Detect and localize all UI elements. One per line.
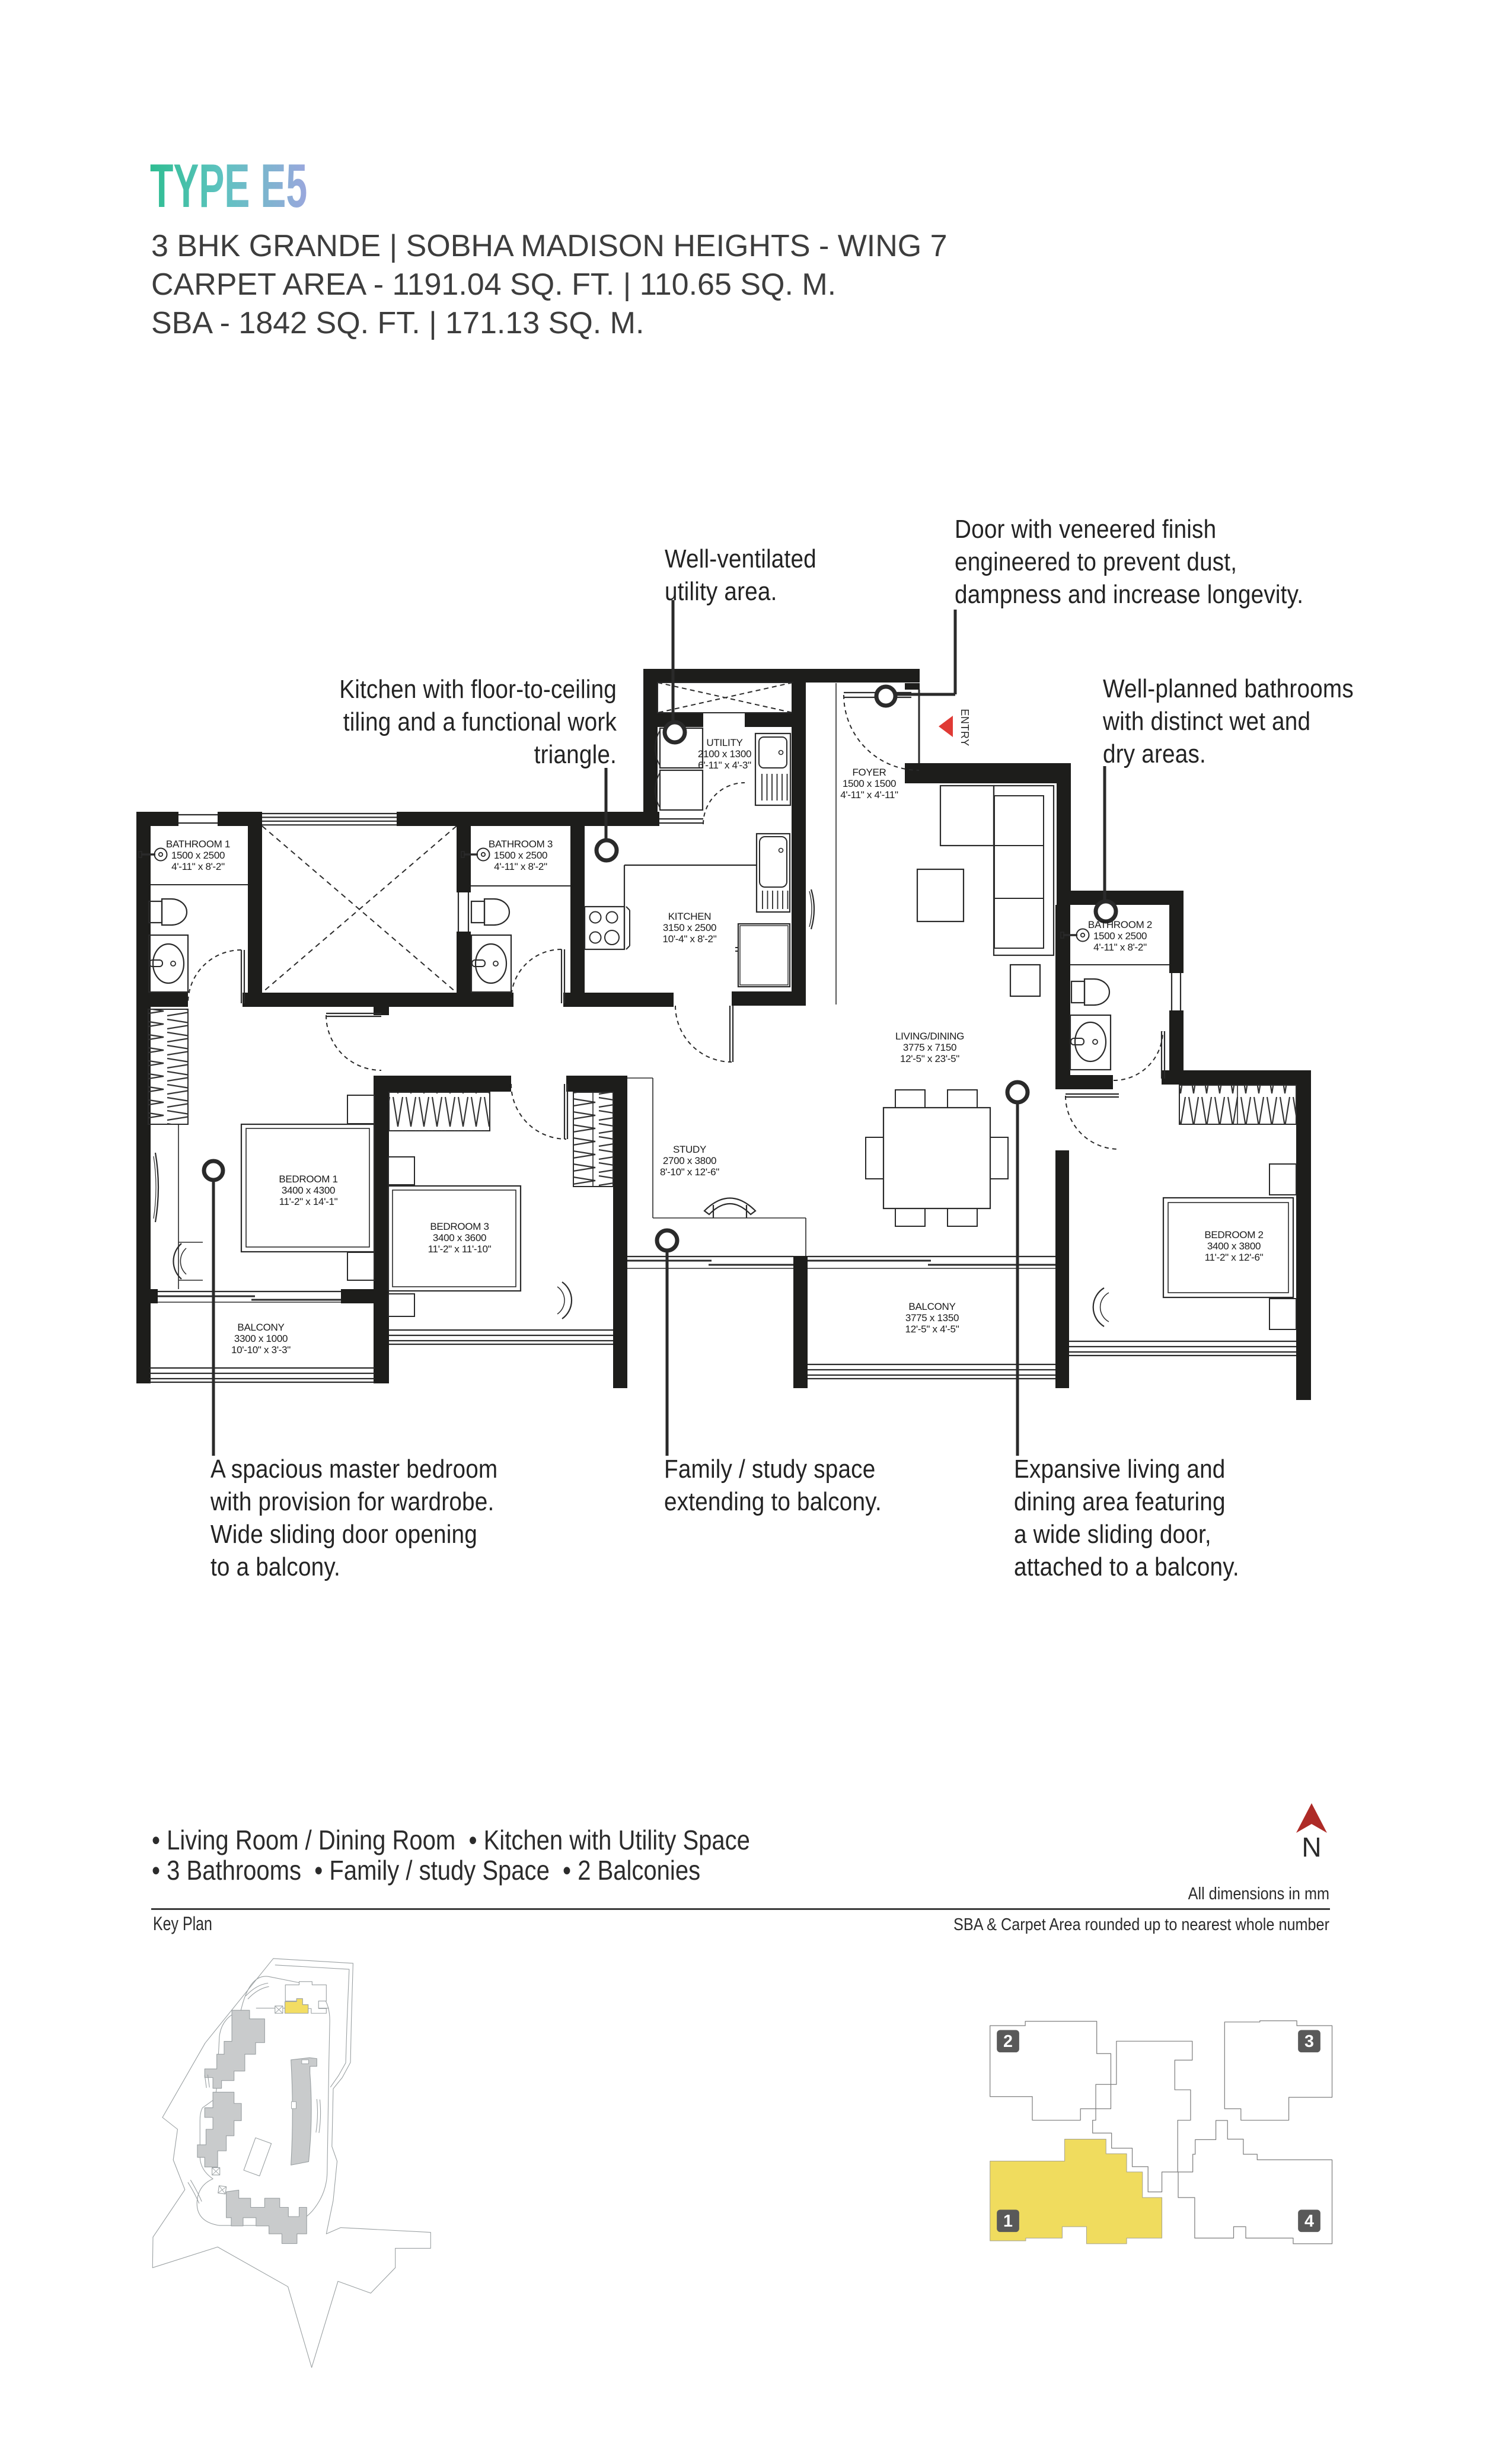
svg-text:4: 4 — [1304, 2212, 1314, 2231]
svg-text:BEDROOM 3: BEDROOM 3 — [430, 1221, 489, 1232]
svg-text:BATHROOM 1: BATHROOM 1 — [166, 838, 230, 850]
svg-text:1: 1 — [1003, 2212, 1013, 2231]
svg-text:3400 x 3600: 3400 x 3600 — [433, 1232, 486, 1243]
svg-text:4'-11" x 8'-2": 4'-11" x 8'-2" — [171, 861, 225, 872]
svg-text:UTILITY: UTILITY — [706, 737, 742, 748]
svg-text:STUDY: STUDY — [673, 1144, 706, 1155]
svg-text:4'-11" x 4'-11": 4'-11" x 4'-11" — [840, 789, 898, 801]
svg-text:4'-11" x 8'-2": 4'-11" x 8'-2" — [494, 861, 547, 872]
svg-text:6'-11" x 4'-3": 6'-11" x 4'-3" — [698, 760, 751, 771]
svg-text:FOYER: FOYER — [852, 767, 886, 778]
svg-text:3775 x 7150: 3775 x 7150 — [903, 1042, 956, 1053]
svg-text:12'-5" x 4'-5": 12'-5" x 4'-5" — [905, 1324, 959, 1335]
svg-text:3400 x 3800: 3400 x 3800 — [1207, 1240, 1261, 1252]
svg-text:1500 x 1500: 1500 x 1500 — [843, 778, 896, 789]
svg-text:LIVING/DINING: LIVING/DINING — [895, 1031, 964, 1042]
svg-text:3: 3 — [1304, 2032, 1314, 2051]
svg-text:BALCONY: BALCONY — [237, 1322, 284, 1333]
svg-text:10'-10" x 3'-3": 10'-10" x 3'-3" — [231, 1344, 291, 1356]
svg-text:ENTRY: ENTRY — [959, 709, 971, 746]
svg-text:3300 x 1000: 3300 x 1000 — [234, 1333, 288, 1344]
svg-text:KITCHEN: KITCHEN — [668, 911, 712, 922]
svg-text:BATHROOM 3: BATHROOM 3 — [489, 838, 553, 850]
svg-text:12'-5" x 23'-5": 12'-5" x 23'-5" — [900, 1053, 959, 1064]
svg-text:BEDROOM 2: BEDROOM 2 — [1204, 1229, 1263, 1240]
svg-text:11'-2" x 14'-1": 11'-2" x 14'-1" — [279, 1196, 338, 1207]
svg-text:8'-10" x 12'-6": 8'-10" x 12'-6" — [660, 1166, 719, 1178]
svg-text:1500 x 2500: 1500 x 2500 — [171, 850, 225, 861]
svg-text:BEDROOM 1: BEDROOM 1 — [279, 1173, 337, 1185]
svg-text:3150 x 2500: 3150 x 2500 — [663, 922, 716, 933]
svg-text:1500 x 2500: 1500 x 2500 — [494, 850, 547, 861]
svg-text:1500 x 2500: 1500 x 2500 — [1093, 930, 1147, 942]
svg-text:2700 x 3800: 2700 x 3800 — [663, 1155, 716, 1166]
svg-text:BATHROOM 2: BATHROOM 2 — [1088, 919, 1152, 930]
svg-text:4'-11" x 8'-2": 4'-11" x 8'-2" — [1093, 942, 1147, 953]
svg-text:3775 x 1350: 3775 x 1350 — [905, 1312, 959, 1324]
svg-text:2: 2 — [1003, 2032, 1013, 2051]
svg-text:10'-4" x 8'-2": 10'-4" x 8'-2" — [663, 933, 717, 945]
svg-text:BALCONY: BALCONY — [908, 1301, 955, 1312]
svg-text:2100 x 1300: 2100 x 1300 — [698, 748, 751, 760]
svg-text:11'-2" x 12'-6": 11'-2" x 12'-6" — [1205, 1252, 1264, 1263]
svg-text:3400 x 4300: 3400 x 4300 — [282, 1185, 335, 1196]
svg-text:11'-2" x 11'-10": 11'-2" x 11'-10" — [428, 1243, 492, 1255]
